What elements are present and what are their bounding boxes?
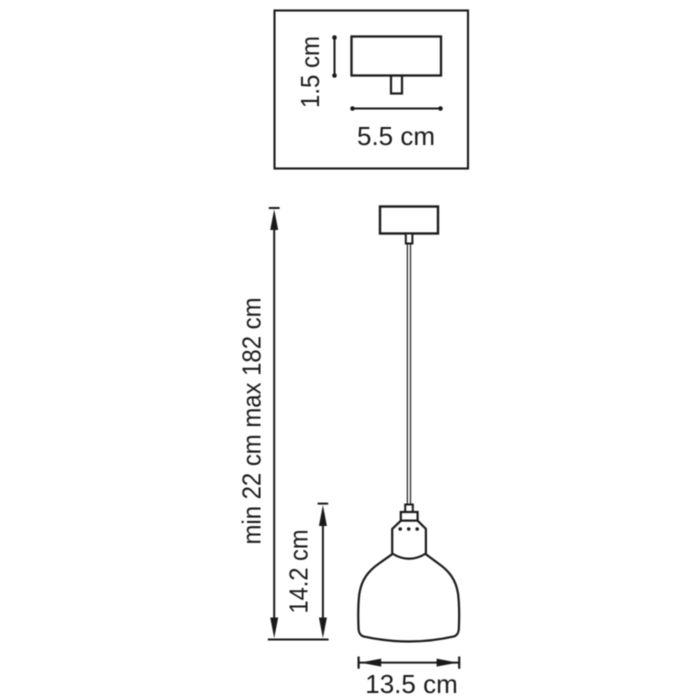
svg-text:14.2 cm: 14.2 cm [284,530,314,614]
svg-text:5.5 cm: 5.5 cm [357,121,435,151]
svg-text:1.5 cm: 1.5 cm [295,36,325,108]
svg-text:min 22 cm max 182 cm: min 22 cm max 182 cm [237,298,267,545]
svg-text:13.5 cm: 13.5 cm [365,669,458,699]
